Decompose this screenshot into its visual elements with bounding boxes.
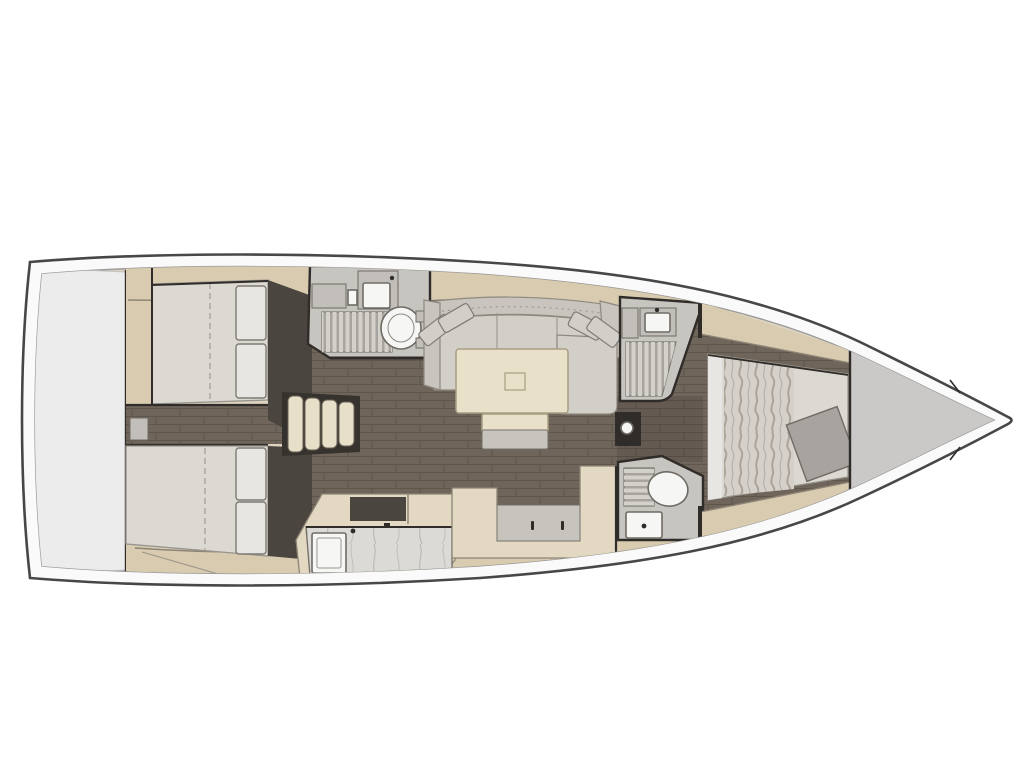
- faucet: [390, 276, 394, 280]
- settee-back: [497, 505, 580, 541]
- soap-fixture: [348, 290, 357, 305]
- pillow: [236, 448, 266, 500]
- step: [339, 402, 354, 446]
- step: [322, 400, 337, 448]
- bulkhead: [698, 302, 702, 338]
- floor-fitting: [624, 442, 629, 447]
- aft-head: [308, 266, 430, 358]
- faucet: [642, 524, 647, 529]
- forward-head: [618, 456, 703, 540]
- latch: [531, 521, 534, 530]
- bench-top: [482, 414, 548, 432]
- corridor-locker: [130, 418, 148, 440]
- faucet: [655, 308, 659, 312]
- table-bench: [482, 414, 548, 449]
- sink: [645, 313, 670, 332]
- stove-knob: [384, 523, 390, 528]
- step: [305, 398, 320, 450]
- duvet-fold: [708, 354, 722, 500]
- companionway-steps: [282, 392, 360, 456]
- aft-cabin-starboard: [126, 446, 312, 560]
- galley: [296, 494, 455, 578]
- galley-recess: [350, 497, 406, 521]
- saloon-table: [456, 349, 568, 413]
- stern-locker: [33, 268, 126, 574]
- latch: [561, 521, 564, 530]
- faucet: [351, 529, 356, 534]
- toilet: [381, 307, 421, 349]
- step: [288, 396, 303, 452]
- vanity-cabinet: [312, 284, 346, 308]
- shower-cabinet: [622, 308, 638, 338]
- pillow: [236, 344, 266, 398]
- duvet-ruffles: [724, 357, 794, 496]
- pillow: [236, 502, 266, 554]
- floor-plan-image: [0, 0, 1024, 768]
- bow-locker: [850, 350, 996, 492]
- bench-face: [482, 430, 548, 449]
- mast-post: [621, 422, 633, 434]
- pillow: [236, 286, 266, 340]
- yacht-floor-plan: [0, 0, 1024, 768]
- sink: [363, 283, 390, 308]
